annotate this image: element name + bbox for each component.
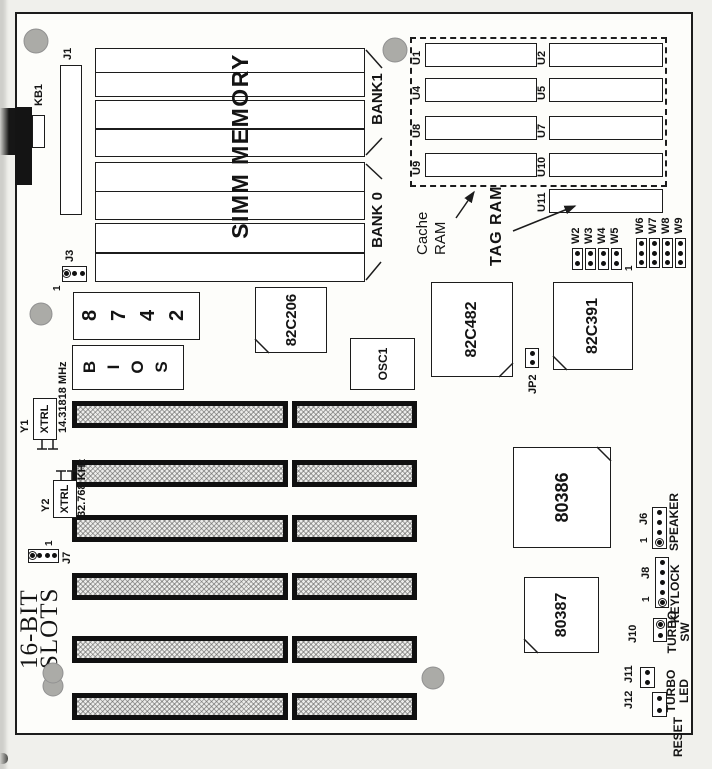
- isa-slot-62pin: [72, 693, 288, 720]
- pin-dot: [530, 360, 535, 365]
- jp2-jumper: [525, 348, 539, 368]
- isa-slot-36pin: [292, 636, 417, 663]
- isa-slot-36pin: [292, 401, 417, 428]
- cache-chip: [549, 153, 663, 177]
- board-canvas-rotated: KB1 J1 J3 1 J7 1 16-BIT SLOTS: [0, 0, 712, 769]
- isa-slot-36pin: [292, 573, 417, 600]
- reset-function-label: RESET: [671, 717, 685, 757]
- chip-cpu-80386: 80386: [513, 447, 611, 548]
- cache-callout-line2: RAM: [432, 212, 450, 255]
- j6-label: J6: [638, 513, 650, 525]
- isa-slot-62pin: [72, 515, 288, 542]
- j1-label: J1: [62, 48, 74, 60]
- j3-pin1-marker: 1: [52, 285, 63, 291]
- turbo-switch-function-label: TURBO SW: [666, 607, 692, 657]
- w8-label: W8: [660, 218, 672, 235]
- scanned-motherboard-diagram: KB1 J1 J3 1 J7 1 16-BIT SLOTS: [0, 0, 712, 769]
- cache-chip-label: U10: [536, 157, 548, 177]
- pin-dot: [72, 272, 77, 277]
- pin-dot: [530, 351, 535, 356]
- scan-edge-shadow: [0, 0, 9, 769]
- cache-chip: [425, 43, 537, 67]
- isa-slot-36pin: [292, 460, 417, 487]
- j8-label: J8: [640, 567, 652, 579]
- jp2-label: JP2: [527, 374, 539, 394]
- bank0-label: BANK 0: [369, 183, 386, 257]
- pin-dot: [64, 272, 69, 277]
- cache-chip-label: U7: [536, 124, 548, 138]
- chip-keyboard-controller-8742: 8742: [73, 292, 200, 340]
- j11-label: J11: [623, 665, 635, 683]
- w2-label: W2: [570, 228, 582, 245]
- keyboard-din-connector: [15, 107, 32, 185]
- cache-chip: [425, 116, 537, 140]
- tag-ram-chip: [549, 189, 663, 213]
- bank1-label: BANK1: [369, 67, 386, 131]
- cache-chip-label: U8: [411, 124, 423, 138]
- pin-dot: [80, 272, 85, 277]
- crystal-y1-ref: Y1: [19, 420, 31, 433]
- crystal-y2-part: XTRL: [59, 485, 71, 514]
- chip-82c206: 82C206: [255, 287, 327, 353]
- speaker-function-label: SPEAKER: [667, 493, 681, 551]
- cache-chip-label: U9: [411, 161, 423, 175]
- isa-slot-62pin: [72, 636, 288, 663]
- j8-keylock-header: [655, 557, 669, 608]
- tag-ram-callout: TAG RAM: [488, 186, 506, 266]
- isa-slot-36pin: [292, 693, 417, 720]
- isa-slot-36pin: [292, 515, 417, 542]
- cache-callout-line1: Cache: [414, 212, 432, 255]
- j12-label: J12: [623, 691, 635, 709]
- w5-label: W5: [609, 228, 621, 245]
- j1-header: [60, 65, 82, 215]
- chip-82c482: 82C482: [431, 282, 513, 377]
- crystal-y1: XTRL: [33, 398, 57, 440]
- w3-jumper: [585, 248, 596, 270]
- slots-title-line2: SLOTS: [40, 557, 60, 669]
- tag-ram-chip-label: U11: [536, 192, 548, 212]
- cache-chip-label: U5: [536, 86, 548, 100]
- cache-chip-label: U1: [411, 51, 423, 65]
- w7-label: W7: [647, 218, 659, 235]
- j3-jumper: [62, 266, 87, 282]
- keyboard-din-connector-tab: [32, 115, 45, 148]
- j7-pin1-marker: 1: [44, 540, 55, 546]
- cache-chip: [425, 78, 537, 102]
- crystal-y1-frequency: 14.31818 MHz: [57, 361, 69, 433]
- cache-chip-label: U4: [411, 86, 423, 100]
- turbo-led-function-label: TURBO LED: [665, 665, 691, 717]
- w6-pin1-marker: 1: [624, 265, 635, 271]
- w6-jumper: [636, 238, 647, 268]
- chip-fpu-80387: 80387: [524, 577, 599, 653]
- isa-slot-62pin: [72, 401, 288, 428]
- crystal-y2-frequency: 32.768 KHz: [76, 459, 88, 517]
- cache-chip-label: U2: [536, 51, 548, 65]
- cache-chip: [425, 153, 537, 177]
- cache-chip: [549, 78, 663, 102]
- cache-ram-callout: Cache RAM: [414, 212, 450, 255]
- crystal-y2-ref: Y2: [40, 499, 52, 512]
- w4-label: W4: [596, 228, 608, 245]
- simm-memory-heading: SIMM MEMORY: [227, 45, 254, 247]
- slots-title: 16-BIT SLOTS: [20, 557, 60, 669]
- chip-osc1: OSC1: [350, 338, 415, 390]
- w7-jumper: [649, 238, 660, 268]
- j8-pin1-marker: 1: [641, 596, 652, 602]
- w9-jumper: [675, 238, 686, 268]
- w4-jumper: [598, 248, 609, 270]
- keyboard-connector-label: KB1: [33, 84, 45, 106]
- cache-chip: [549, 43, 663, 67]
- isa-slot-62pin: [72, 573, 288, 600]
- w6-label: W6: [634, 218, 646, 235]
- j7-label: J7: [61, 552, 73, 564]
- isa-slot-62pin: [72, 460, 288, 487]
- j3-label: J3: [64, 250, 76, 262]
- j6-pin1-marker: 1: [639, 537, 650, 543]
- j10-label: J10: [627, 625, 639, 643]
- j11-header: [640, 667, 655, 688]
- cache-chip: [549, 116, 663, 140]
- w2-jumper: [572, 248, 583, 270]
- j6-speaker-header: [652, 507, 667, 549]
- crystal-y1-part: XTRL: [39, 405, 51, 434]
- chip-bios: BIOS: [72, 345, 184, 390]
- chip-82c391: 82C391: [553, 282, 633, 370]
- w3-label: W3: [583, 228, 595, 245]
- w5-jumper: [611, 248, 622, 270]
- w8-jumper: [662, 238, 673, 268]
- crystal-y2: XTRL: [53, 480, 77, 518]
- w9-label: W9: [673, 218, 685, 235]
